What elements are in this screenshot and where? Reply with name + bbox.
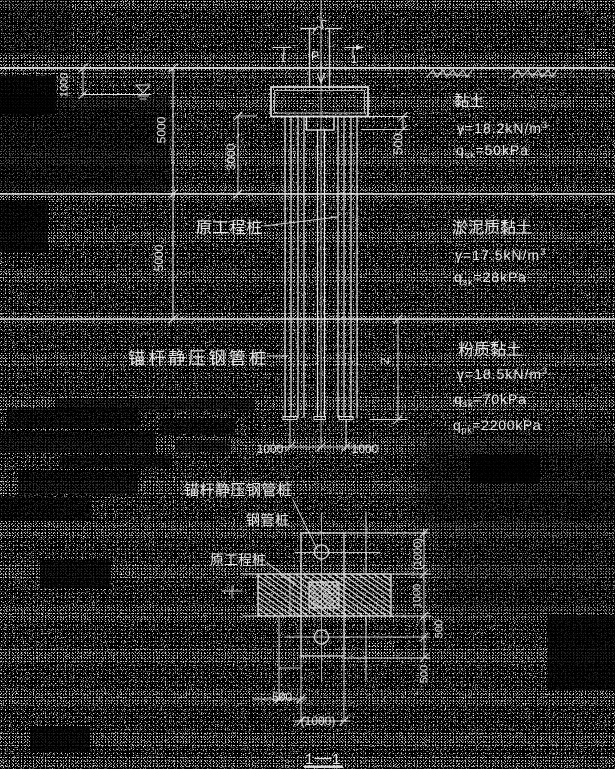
svg-text:P: P [311,49,319,63]
svg-text:(1000): (1000) [301,714,336,728]
svg-text:原工程桩: 原工程桩 [196,219,262,237]
svg-text:γ=18.2kN/m3: γ=18.2kN/m3 [457,120,548,136]
svg-text:1000: 1000 [257,442,284,456]
svg-text:3000: 3000 [224,143,238,170]
svg-text:5000: 5000 [152,244,166,271]
svg-text:锚杆静压钢管桩: 锚杆静压钢管桩 [128,349,266,368]
svg-text:1000: 1000 [412,584,424,608]
svg-text:1: 1 [305,751,313,768]
svg-text:黏土: 黏土 [454,93,484,110]
svg-text:钢管桩: 钢管桩 [246,512,289,528]
svg-text:γ=17.5kN/m3: γ=17.5kN/m3 [455,247,546,263]
svg-text:淤泥质黏土: 淤泥质黏土 [452,219,532,237]
svg-text:5000: 5000 [155,116,169,143]
svg-text:1000: 1000 [59,73,71,97]
svg-text:500: 500 [434,620,446,638]
svg-text:2: 2 [378,357,392,364]
svg-text:锚杆静压钢管桩: 锚杆静压钢管桩 [184,482,292,499]
svg-text:500: 500 [392,134,406,155]
svg-text:(1000): (1000) [412,538,424,570]
svg-text:1: 1 [351,54,357,66]
svg-text:γ=18.5kN/m3: γ=18.5kN/m3 [457,366,548,382]
svg-text:粉质黏土: 粉质黏土 [458,341,522,359]
svg-text:1: 1 [280,53,286,65]
svg-text:原工程桩: 原工程桩 [210,552,266,568]
svg-text:500: 500 [272,690,292,704]
svg-text:1000: 1000 [352,442,379,456]
svg-text:1: 1 [332,751,340,768]
svg-text:500: 500 [419,665,431,683]
